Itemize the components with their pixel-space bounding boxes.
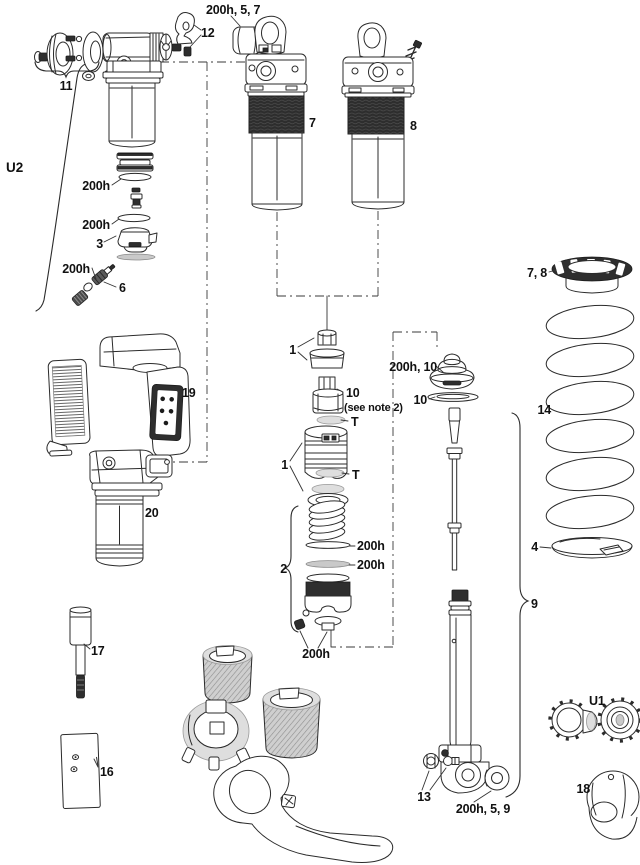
part-18-label: 18: [576, 782, 590, 796]
seal-200h-d-label: 200h: [357, 539, 385, 553]
seal-200h-f-label: 200h: [302, 647, 330, 661]
diagram-canvas: U2 11: [0, 0, 640, 865]
shock-20-label: 20: [145, 506, 159, 520]
tool-17-label: 17: [91, 644, 105, 658]
seal-200h-b-label: 200h: [82, 218, 110, 232]
u2-label: U2: [6, 160, 23, 175]
damper-9-label: 9: [531, 597, 538, 611]
part-12-label: 12: [201, 26, 215, 40]
part-6-label: 6: [119, 281, 126, 295]
note-10-label: (see note 2): [344, 402, 403, 414]
seal-200h-e-label: 200h: [357, 558, 385, 572]
collar-7-8-label: 7, 8: [527, 266, 547, 280]
part-1a-label: 1: [289, 343, 296, 357]
part-10a-label: 10: [346, 386, 360, 400]
part-3-label: 3: [96, 237, 103, 251]
seal-200h-a-label: 200h: [82, 179, 110, 193]
t-lower-label: T: [352, 468, 360, 482]
bumper-top-label: 200h, 5, 7: [206, 3, 261, 17]
seal-200h-c-label: 200h: [62, 262, 90, 276]
bushing-label: 200h, 5, 9: [456, 802, 511, 816]
shock-7-label: 7: [309, 116, 316, 130]
module-19-label: 19: [182, 386, 196, 400]
exploded-parts-diagram: U2 11: [0, 0, 640, 865]
shock-8-label: 8: [410, 119, 417, 133]
spring-14-label: 14: [537, 403, 551, 417]
t-upper-label: T: [351, 415, 359, 429]
part-13-label: 13: [417, 790, 431, 804]
u1-label: U1: [589, 694, 605, 708]
part-1b-label: 1: [281, 458, 288, 472]
group-2-label: 2: [280, 562, 287, 576]
tool-16-label: 16: [100, 765, 114, 779]
part-11-label: 11: [60, 79, 73, 93]
retainer-4-label: 4: [531, 540, 538, 554]
bumper-right-label: 200h, 10: [389, 360, 437, 374]
part-10b-label: 10: [413, 393, 427, 407]
